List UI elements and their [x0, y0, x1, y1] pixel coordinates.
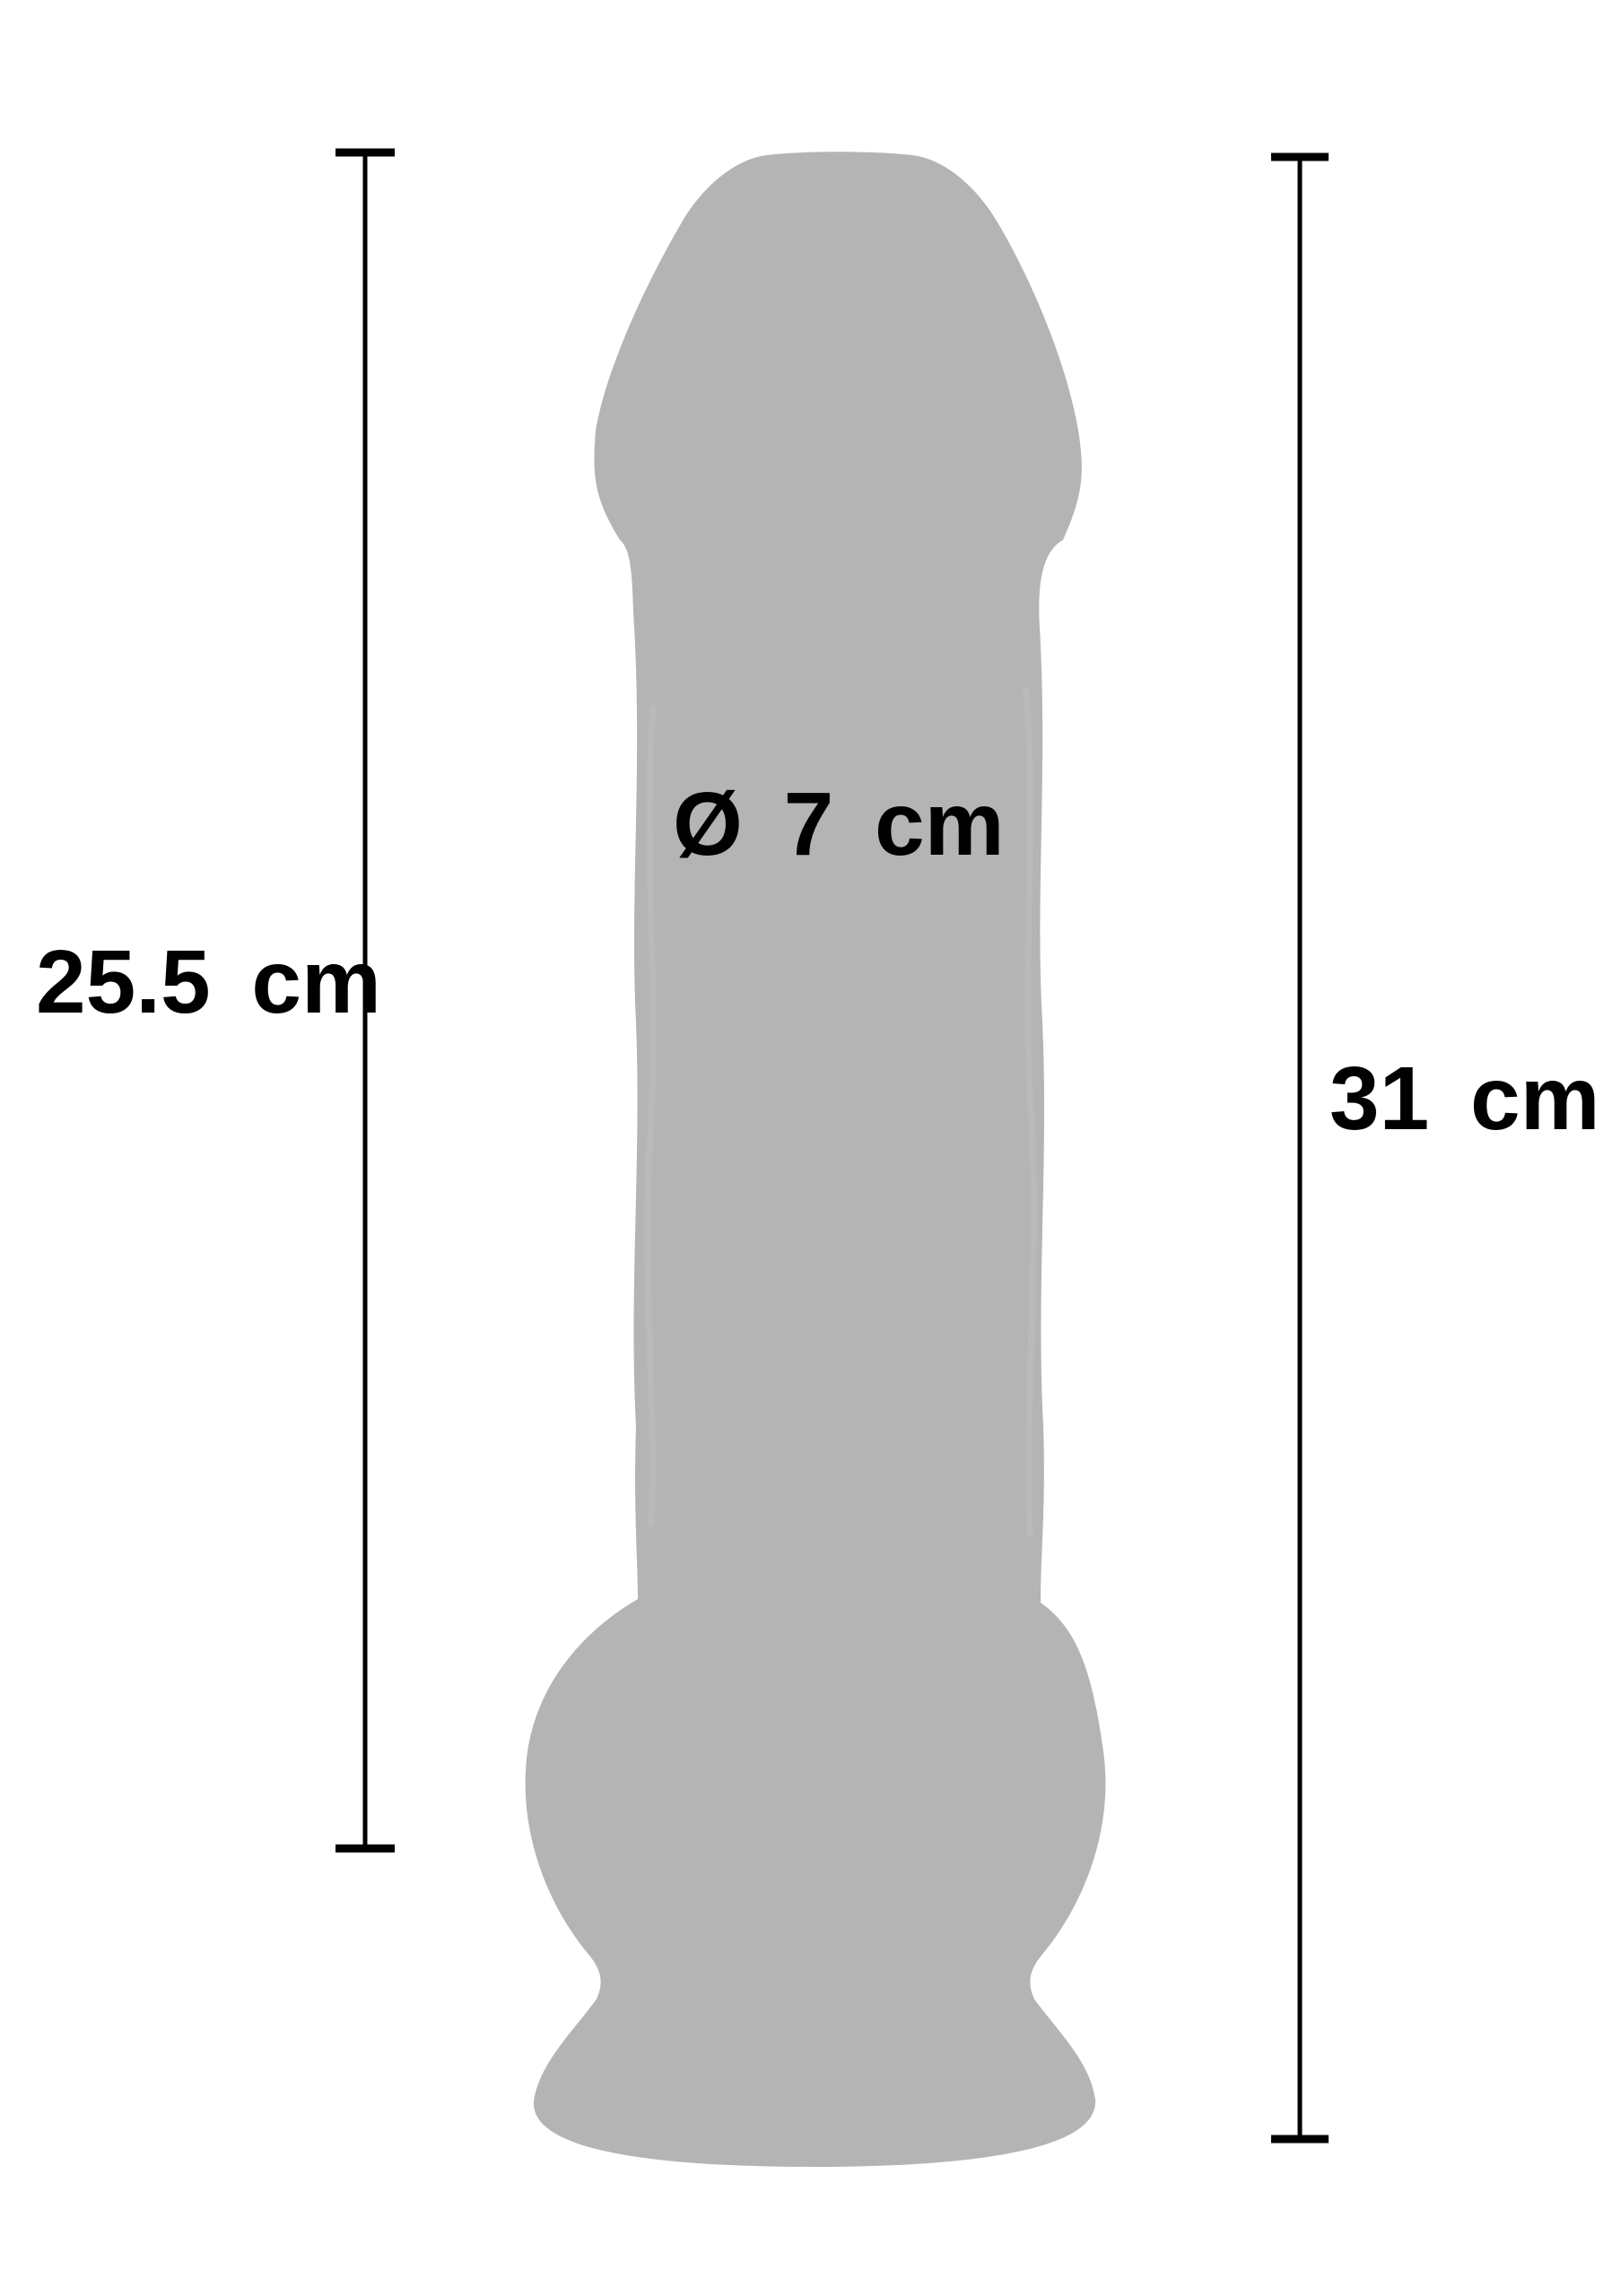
- right-dimension-line: [1271, 157, 1329, 2139]
- product-silhouette: [526, 152, 1106, 2167]
- total-length-label: 31 cm: [1329, 1054, 1600, 1144]
- insertable-length-label: 25.5 cm: [36, 937, 381, 1027]
- diameter-label: Ø 7 cm: [673, 779, 1005, 869]
- product-dimension-diagram: 25.5 cm 31 cm Ø 7 cm: [0, 0, 1621, 2296]
